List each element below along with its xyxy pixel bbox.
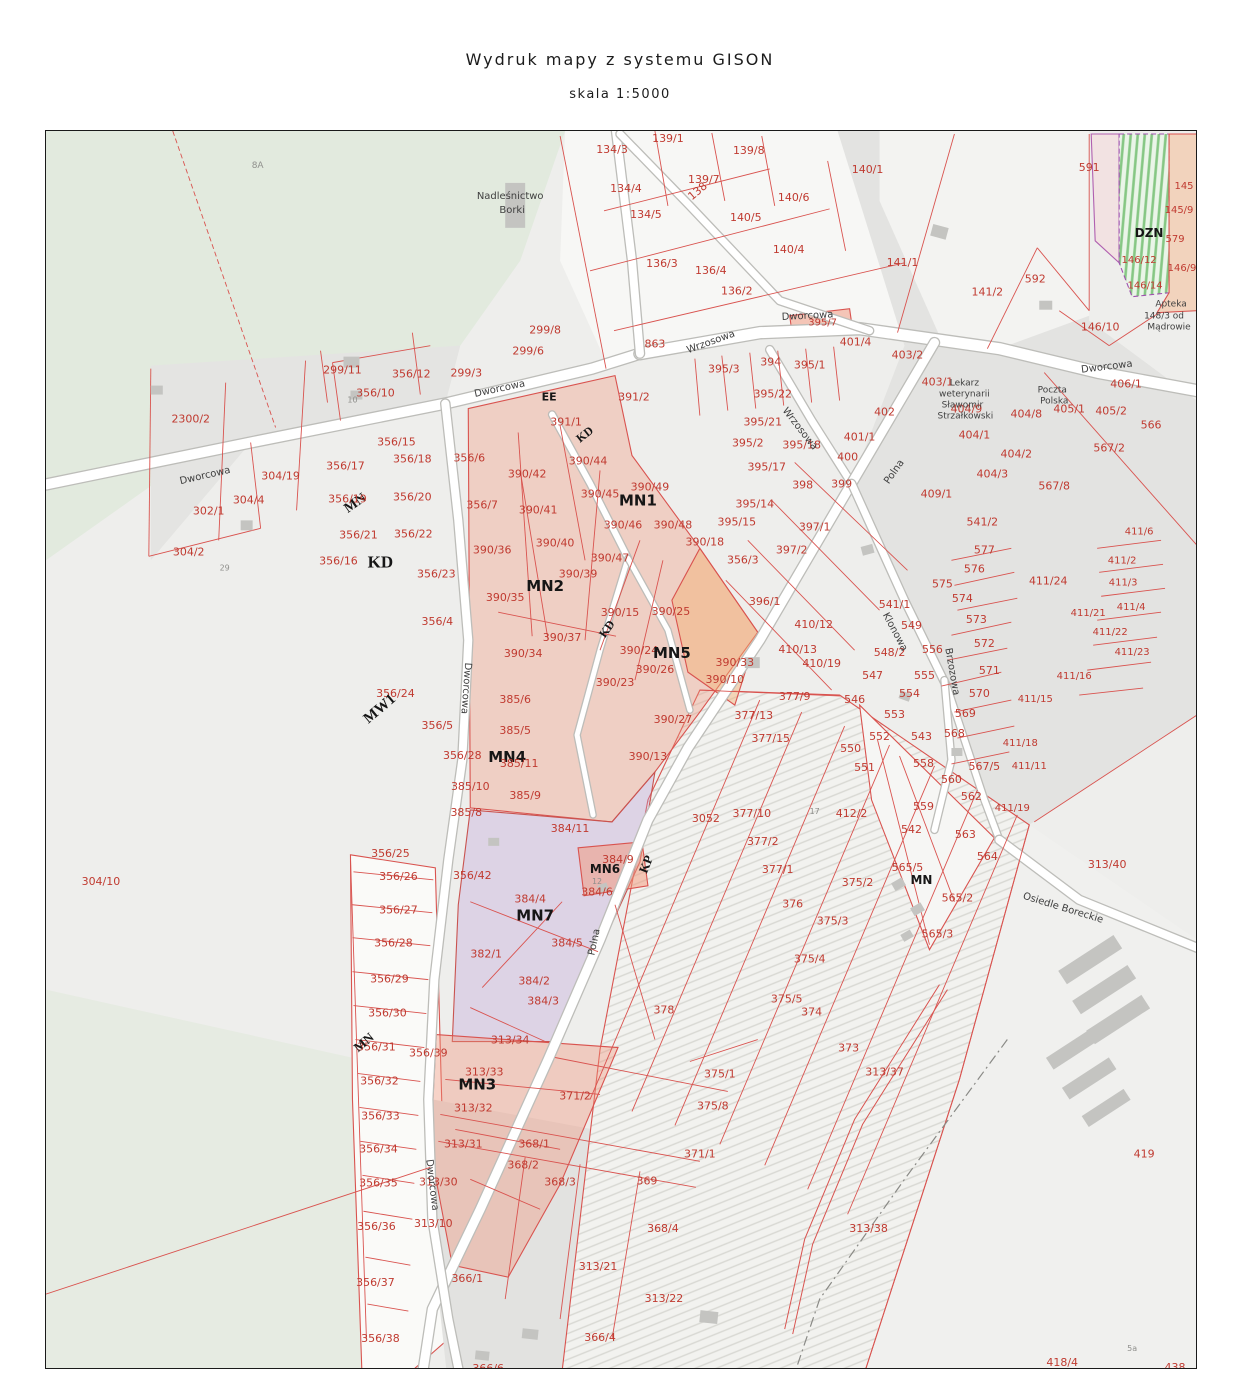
parcel-label: 134/5 xyxy=(630,208,662,221)
parcel-label: 377/15 xyxy=(751,732,790,745)
parcel-label: 551 xyxy=(854,761,875,774)
parcel-label: 356/12 xyxy=(392,368,431,381)
parcel-label: 403/1 xyxy=(922,376,954,389)
street-label: Lekarz xyxy=(950,379,980,389)
building xyxy=(488,838,499,846)
parcel-label: 569 xyxy=(955,707,976,720)
parcel-label: 395/21 xyxy=(743,416,782,429)
parcel-label: 438 xyxy=(1165,1361,1186,1368)
parcel-label: 409/1 xyxy=(921,487,953,500)
parcel-label: 356/3 xyxy=(727,553,759,566)
parcel-label: 356/30 xyxy=(368,1007,407,1020)
parcel-label: 390/23 xyxy=(596,676,635,689)
house-number: 29 xyxy=(220,563,230,572)
parcel-label: 375/8 xyxy=(697,1099,729,1112)
parcel-label: 356/33 xyxy=(361,1109,400,1122)
zone-label: MN xyxy=(911,873,933,887)
parcel-label: 313/37 xyxy=(865,1065,904,1078)
zone-label: EE xyxy=(542,391,557,404)
zone-label: MN7 xyxy=(516,907,554,925)
parcel-label: 559 xyxy=(913,800,934,813)
parcel-label: 145 xyxy=(1175,181,1194,192)
street-label: Polska xyxy=(1040,397,1068,407)
parcel-label: 356/36 xyxy=(357,1220,396,1233)
parcel-label: 568 xyxy=(944,727,965,740)
print-header: Wydruk mapy z systemu GISON skala 1:5000 xyxy=(0,0,1240,102)
parcel-label: 591 xyxy=(1079,161,1100,174)
parcel-label: 398 xyxy=(792,478,813,491)
parcel-label: 403/2 xyxy=(892,349,924,362)
parcel-label: 565/2 xyxy=(942,892,974,905)
parcel-label: 390/47 xyxy=(591,551,630,564)
parcel-label: 374 xyxy=(801,1006,822,1019)
parcel-label: 356/17 xyxy=(326,459,365,472)
parcel-label: 141/2 xyxy=(972,286,1004,299)
parcel-label: 313/22 xyxy=(645,1292,684,1305)
parcel-label: 366/1 xyxy=(451,1272,483,1285)
parcel-label: 299/8 xyxy=(529,324,561,337)
parcel-label: 356/28 xyxy=(443,749,482,762)
parcel-label: 401/4 xyxy=(840,336,872,349)
parcel-label: 592 xyxy=(1025,273,1046,286)
parcel-label: 313/32 xyxy=(454,1101,493,1114)
parcel-label: 368/2 xyxy=(507,1158,539,1171)
parcel-label: 377/2 xyxy=(747,835,779,848)
parcel-label: 356/37 xyxy=(356,1276,395,1289)
parcel-label: 2300/2 xyxy=(171,413,210,426)
parcel-label: 575 xyxy=(932,577,953,590)
parcel-label: 371/1 xyxy=(684,1147,716,1160)
parcel-label: 397/2 xyxy=(776,543,808,556)
parcel-label: 313/34 xyxy=(491,1034,530,1047)
parcel-label: 384/2 xyxy=(518,975,550,988)
parcel-label: 313/31 xyxy=(444,1137,483,1150)
building xyxy=(241,520,253,530)
parcel-label: 562 xyxy=(961,790,982,803)
parcel-label: 378 xyxy=(653,1004,674,1017)
parcel-label: 356/7 xyxy=(466,498,498,511)
parcel-label: 390/35 xyxy=(486,591,525,604)
parcel-label: 313/38 xyxy=(849,1222,888,1235)
zone-label: MN6 xyxy=(590,862,620,876)
parcel-label: 375/5 xyxy=(771,993,803,1006)
parcel-label: 390/44 xyxy=(569,454,608,467)
parcel-label: 313/10 xyxy=(414,1217,453,1230)
parcel-label: 552 xyxy=(869,730,890,743)
parcel-label: 304/2 xyxy=(173,545,205,558)
parcel-label: 577 xyxy=(974,543,995,556)
zone-label: DZN xyxy=(1135,226,1164,240)
zone-code-label: KD xyxy=(368,552,393,571)
parcel-label: 541/2 xyxy=(967,515,999,528)
parcel-label: 390/15 xyxy=(601,606,640,619)
parcel-label: 376 xyxy=(782,898,803,911)
parcel-label: 136/2 xyxy=(721,285,753,298)
parcel-label: 139/8 xyxy=(733,144,765,157)
parcel-label: 140/6 xyxy=(778,191,810,204)
parcel-label: 410/13 xyxy=(778,643,817,656)
parcel-label: 390/27 xyxy=(654,713,693,726)
parcel-label: 356/35 xyxy=(359,1176,398,1189)
parcel-label: 567/8 xyxy=(1038,479,1070,492)
map-frame: 8A134/3139/1139/8134/4139/7140/1591134/5… xyxy=(45,130,1197,1369)
parcel-label: 356/34 xyxy=(359,1142,398,1155)
parcel-label: 384/3 xyxy=(527,995,559,1008)
parcel-label: 368/1 xyxy=(518,1137,550,1150)
parcel-label: 394 xyxy=(760,356,781,369)
map-scale-label: skala 1:5000 xyxy=(0,87,1240,102)
street-label: Strzałkowski xyxy=(938,412,994,422)
parcel-label: 404/3 xyxy=(977,467,1009,480)
parcel-label: 405/2 xyxy=(1095,405,1127,418)
parcel-label: 385/5 xyxy=(499,724,531,737)
parcel-label: 356/5 xyxy=(422,719,454,732)
parcel-label: 146/9 xyxy=(1168,263,1196,274)
parcel-label: 560 xyxy=(941,773,962,786)
parcel-label: 396/1 xyxy=(749,595,781,608)
map-canvas: 8A134/3139/1139/8134/4139/7140/1591134/5… xyxy=(46,131,1196,1368)
parcel-label: 371/2 xyxy=(559,1089,591,1102)
parcel-label: 404/1 xyxy=(959,429,991,442)
parcel-label: 576 xyxy=(964,562,985,575)
parcel-label: 136/4 xyxy=(695,264,727,277)
building xyxy=(522,1328,539,1340)
house-number: 10 xyxy=(347,396,357,405)
parcel-label: 356/27 xyxy=(379,904,418,917)
parcel-label: 411/4 xyxy=(1117,602,1146,613)
parcel-label: 356/15 xyxy=(377,435,416,448)
parcel-label: 375/1 xyxy=(704,1067,736,1080)
parcel-label: 567/5 xyxy=(969,760,1001,773)
page-title: Wydruk mapy z systemu GISON xyxy=(0,50,1240,69)
parcel-label: 356/19 xyxy=(328,492,367,505)
parcel-label: 356/6 xyxy=(453,451,485,464)
building xyxy=(951,748,962,756)
parcel-label: 313/21 xyxy=(579,1260,618,1273)
parcel-label: 356/23 xyxy=(417,567,456,580)
parcel-label: 390/42 xyxy=(508,467,547,480)
street-label: Apteka xyxy=(1155,300,1186,310)
parcel-label: 391/2 xyxy=(618,391,650,404)
parcel-label: 390/25 xyxy=(652,605,691,618)
zone-label: MN2 xyxy=(526,577,564,595)
parcel-label: 375/4 xyxy=(794,953,826,966)
parcel-label: 385/9 xyxy=(509,789,541,802)
parcel-label: 140/4 xyxy=(773,243,805,256)
building xyxy=(151,386,163,395)
parcel-label: 550 xyxy=(840,742,861,755)
parcel-label: 368/4 xyxy=(647,1222,679,1235)
parcel-label: 356/29 xyxy=(370,973,409,986)
building xyxy=(475,1350,490,1360)
house-number: 8A xyxy=(252,161,265,171)
parcel-label: 377/13 xyxy=(734,709,773,722)
parcel-label: 377/1 xyxy=(762,863,794,876)
parcel-label: 356/4 xyxy=(422,615,454,628)
parcel-label: 356/42 xyxy=(453,869,492,882)
zone-label: MN3 xyxy=(458,1075,496,1093)
parcel-label: 411/23 xyxy=(1115,647,1150,658)
parcel-label: 377/9 xyxy=(779,690,811,703)
parcel-label: 366/4 xyxy=(584,1331,616,1344)
parcel-label: 541/1 xyxy=(879,598,911,611)
parcel-label: 390/34 xyxy=(504,647,543,660)
parcel-label: 558 xyxy=(913,757,934,770)
parcel-label: 566 xyxy=(1141,419,1162,432)
house-number: 17 xyxy=(810,807,820,816)
parcel-label: 572 xyxy=(974,637,995,650)
parcel-label: 146/10 xyxy=(1081,321,1120,334)
parcel-label: 385/6 xyxy=(499,693,531,706)
parcel-label: 395/14 xyxy=(735,497,774,510)
parcel-label: 411/11 xyxy=(1012,761,1047,772)
parcel-label: 412/2 xyxy=(836,807,868,820)
building xyxy=(1039,301,1052,310)
parcel-label: 390/10 xyxy=(706,673,745,686)
parcel-label: 304/10 xyxy=(82,875,121,888)
parcel-label: 390/39 xyxy=(559,567,598,580)
parcel-label: 146/12 xyxy=(1122,255,1157,266)
parcel-label: 373 xyxy=(838,1042,859,1055)
parcel-label: 356/32 xyxy=(360,1074,399,1087)
parcel-label: 391/1 xyxy=(550,416,582,429)
parcel-label: 411/3 xyxy=(1109,577,1138,588)
parcel-label: 542 xyxy=(901,823,922,836)
parcel-label: 411/24 xyxy=(1029,574,1068,587)
parcel-label: 565/3 xyxy=(922,928,954,941)
parcel-label: 418/4 xyxy=(1046,1356,1078,1368)
parcel-label: 356/21 xyxy=(339,528,378,541)
parcel-label: 140/1 xyxy=(852,163,884,176)
parcel-label: 375/3 xyxy=(817,915,849,928)
parcel-label: 356/22 xyxy=(394,527,433,540)
parcel-label: 377/10 xyxy=(732,807,771,820)
parcel-label: 397/1 xyxy=(799,520,831,533)
parcel-label: 395/3 xyxy=(708,363,740,376)
parcel-label: 141/1 xyxy=(887,256,919,269)
parcel-label: 411/21 xyxy=(1071,608,1106,619)
parcel-label: 547 xyxy=(862,669,883,682)
street-label: weterynarii xyxy=(939,390,990,400)
parcel-label: 390/49 xyxy=(631,480,670,493)
parcel-label: 366/6 xyxy=(472,1362,504,1368)
parcel-label: 395/15 xyxy=(718,515,757,528)
parcel-label: 400 xyxy=(837,450,858,463)
parcel-label: 304/4 xyxy=(233,493,265,506)
parcel-label: 390/46 xyxy=(604,518,643,531)
parcel-label: 356/25 xyxy=(371,847,410,860)
house-number: 5a xyxy=(1127,1344,1137,1353)
parcel-label: 368/3 xyxy=(544,1175,576,1188)
parcel-label: 356/20 xyxy=(393,490,432,503)
parcel-label: 411/15 xyxy=(1018,694,1053,705)
parcel-label: 146/14 xyxy=(1128,281,1163,292)
parcel-label: 375/2 xyxy=(842,876,874,889)
parcel-label: 411/22 xyxy=(1093,627,1128,638)
parcel-label: 136/3 xyxy=(646,257,678,270)
parcel-label: 404/2 xyxy=(1001,447,1033,460)
parcel-label: 410/19 xyxy=(802,657,841,670)
parcel-label: 395/17 xyxy=(747,460,786,473)
street-label: Borki xyxy=(499,205,525,216)
parcel-label: 356/18 xyxy=(393,452,432,465)
parcel-label: 563 xyxy=(955,828,976,841)
parcel-label: 570 xyxy=(969,687,990,700)
street-label: Nadleśnictwo xyxy=(477,190,544,202)
parcel-label: 313/40 xyxy=(1088,858,1127,871)
zone-label: MN1 xyxy=(619,491,657,509)
parcel-label: 145/9 xyxy=(1165,205,1194,216)
parcel-label: 390/40 xyxy=(536,536,575,549)
parcel-label: 390/13 xyxy=(629,750,668,763)
parcel-label: 385/8 xyxy=(450,806,482,819)
parcel-label: 406/1 xyxy=(1110,378,1142,391)
parcel-label: 411/18 xyxy=(1003,738,1038,749)
parcel-label: 390/33 xyxy=(716,656,755,669)
parcel-label: 553 xyxy=(884,708,905,721)
house-number: 12 xyxy=(592,877,602,886)
parcel-label: 419 xyxy=(1134,1147,1155,1160)
parcel-label: 299/3 xyxy=(450,367,482,380)
parcel-label: 546 xyxy=(844,693,865,706)
parcel-label: 140/5 xyxy=(730,211,762,224)
parcel-label: 549 xyxy=(901,619,922,632)
street-label: Mądrowie xyxy=(1147,323,1191,333)
parcel-label: 395/1 xyxy=(794,359,826,372)
street-label: Poczta xyxy=(1038,386,1067,396)
parcel-label: 356/39 xyxy=(409,1047,448,1060)
zone-dzn-green xyxy=(1119,134,1169,297)
parcel-label: 304/19 xyxy=(261,469,300,482)
street-label: 148/3 od xyxy=(1144,312,1184,322)
parcel-label: 390/48 xyxy=(654,518,693,531)
parcel-label: 385/11 xyxy=(500,757,539,770)
parcel-label: 384/5 xyxy=(551,937,583,950)
parcel-label: 863 xyxy=(644,338,665,351)
parcel-label: 356/28 xyxy=(374,937,413,950)
parcel-label: 411/6 xyxy=(1125,526,1154,537)
parcel-label: 390/45 xyxy=(581,487,620,500)
parcel-label: 543 xyxy=(911,730,932,743)
parcel-label: 390/18 xyxy=(686,535,725,548)
parcel-label: 299/6 xyxy=(512,345,544,358)
parcel-label: 369 xyxy=(636,1174,657,1187)
parcel-label: 399 xyxy=(831,477,852,490)
parcel-label: 579 xyxy=(1166,234,1185,245)
parcel-label: 401/1 xyxy=(844,430,876,443)
parcel-label: 395/22 xyxy=(753,388,792,401)
parcel-label: 139/1 xyxy=(652,132,684,145)
parcel-label: 411/19 xyxy=(995,803,1030,814)
parcel-label: 299/11 xyxy=(323,364,362,377)
parcel-label: 390/41 xyxy=(519,503,558,516)
parcel-label: 356/10 xyxy=(356,387,395,400)
parcel-label: 356/26 xyxy=(379,870,418,883)
parcel-label: 384/6 xyxy=(581,886,613,899)
parcel-label: 404/8 xyxy=(1010,408,1042,421)
parcel-label: 402 xyxy=(874,406,895,419)
parcel-label: 384/4 xyxy=(514,893,546,906)
gison-map-print-page: { "title": "Wydruk mapy z systemu GISON"… xyxy=(0,0,1240,1389)
parcel-label: 302/1 xyxy=(193,504,225,517)
parcel-label: 382/1 xyxy=(470,948,502,961)
parcel-label: 555 xyxy=(914,669,935,682)
building xyxy=(699,1310,718,1324)
parcel-label: 411/16 xyxy=(1057,671,1092,682)
parcel-label: 554 xyxy=(899,687,920,700)
parcel-label: 410/12 xyxy=(794,618,833,631)
parcel-label: 567/2 xyxy=(1093,441,1125,454)
parcel-label: 390/37 xyxy=(543,631,582,644)
parcel-label: 571 xyxy=(979,664,1000,677)
street-label: Sławomir xyxy=(942,401,984,411)
parcel-label: 134/3 xyxy=(596,143,628,156)
parcel-label: 395/2 xyxy=(732,436,764,449)
parcel-label: 134/4 xyxy=(610,182,642,195)
parcel-label: 411/2 xyxy=(1108,555,1137,566)
parcel-label: 573 xyxy=(966,613,987,626)
parcel-label: 564 xyxy=(977,850,998,863)
zone-label: MN5 xyxy=(653,644,691,662)
parcel-label: 384/11 xyxy=(551,822,590,835)
parcel-label: 3052 xyxy=(692,812,720,825)
parcel-label: 390/36 xyxy=(473,543,512,556)
parcel-label: 390/26 xyxy=(636,663,675,676)
parcel-label: 356/38 xyxy=(361,1332,400,1345)
parcel-label: 385/10 xyxy=(451,780,490,793)
parcel-label: 556 xyxy=(922,643,943,656)
parcel-label: 574 xyxy=(952,592,973,605)
parcel-label: 356/16 xyxy=(319,554,358,567)
